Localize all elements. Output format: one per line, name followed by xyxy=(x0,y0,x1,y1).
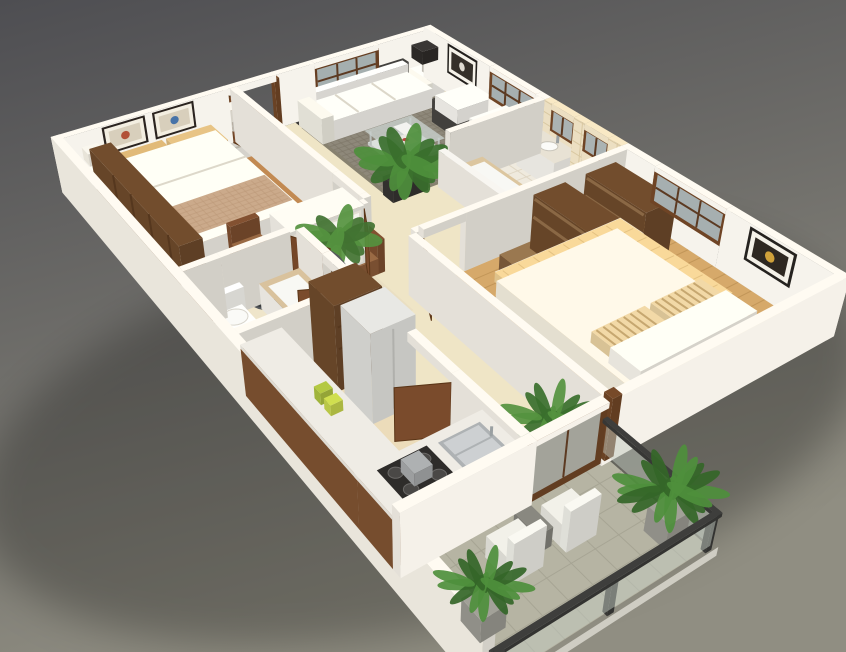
floor-plan-3d-render xyxy=(0,0,846,652)
screenshot-root xyxy=(0,0,846,652)
